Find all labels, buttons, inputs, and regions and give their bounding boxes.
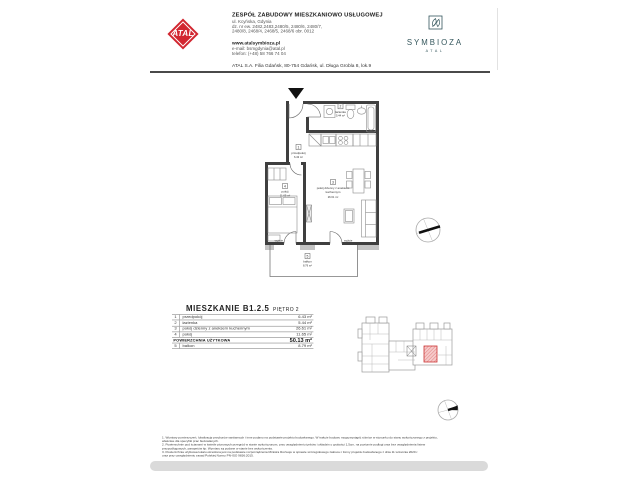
apartment-card-page: ATAL ZESPÓŁ ZABUDOWY MIESZKANIOWO USŁUGO… <box>0 0 640 480</box>
compass-icon-small <box>438 400 458 420</box>
inset-highlighted-unit <box>424 346 437 362</box>
wardrobe-icon <box>268 168 286 180</box>
row-no: 5 <box>172 344 180 348</box>
floor-label: PIĘTRO 2 <box>273 307 299 313</box>
room-2-label: 2 łazienka 5.44 m² <box>335 104 346 118</box>
row-no: 2 <box>172 321 180 326</box>
room-4-label: 4 pokój 11.65 m² <box>280 184 291 198</box>
duct-shaft <box>307 205 312 222</box>
row-name: pokój dzienny z aneksem kuchennym <box>180 327 284 331</box>
svg-text:26.61 m²: 26.61 m² <box>328 195 339 199</box>
row-area: 5.44 m² <box>284 321 313 325</box>
total-row: POWIERZCHNIA UŻYTKOWA 50.13 m² <box>172 337 313 343</box>
plan-doors <box>284 104 342 244</box>
room-3-label: 3 pokój dzienny z aneksem kuchennym 26.6… <box>317 180 350 199</box>
row-area: 8.79 m² <box>284 344 313 348</box>
disclaimer-line: oraz przy uwzględnieniu zasad Polskiej N… <box>162 454 488 458</box>
footer-bar <box>150 461 488 471</box>
table-row: 2 łazienka 5.44 m² <box>172 320 313 326</box>
exit-label-left: wyjście <box>275 239 284 243</box>
symbioza-logo: SYMBIOZA ATAL <box>404 15 466 53</box>
entrance-arrow-icon <box>288 88 304 99</box>
bathroom-fixtures <box>324 105 376 132</box>
living-furniture <box>307 169 377 237</box>
coffee-table-icon <box>344 209 354 223</box>
legal-disclaimer: 1. Wymiary pomieszczeń, lokalizację przy… <box>162 436 488 458</box>
atal-logo-text: ATAL <box>160 29 206 38</box>
row-name: łazienka <box>180 321 284 325</box>
compass-icon <box>410 212 450 252</box>
total-label: POWIERZCHNIA UŻYTKOWA <box>172 338 284 342</box>
office-address: ATAL S.A. Filia Gdańsk, 80-754 Gdańsk, u… <box>232 64 472 69</box>
floor-plan: 1 przedpokój 6.43 m² 2 łazienka 5.44 m² … <box>245 82 395 297</box>
dining-table-icon <box>347 169 371 193</box>
total-area: 50.13 m² <box>284 337 313 343</box>
apartment-id: MIESZKANIE B1.2.5 <box>186 304 269 313</box>
table-row: 3 pokój dzienny z aneksem kuchennym 26.6… <box>172 326 313 332</box>
svg-text:5.44 m²: 5.44 m² <box>336 114 345 118</box>
kitchen-counter <box>309 134 376 146</box>
leaf-icon <box>428 15 443 30</box>
row-no: 4 <box>172 332 180 337</box>
row-name: balkon <box>180 344 284 348</box>
brand-sub: ATAL <box>404 49 466 53</box>
svg-text:łazienka: łazienka <box>335 110 346 114</box>
table-title-row: MIESZKANIE B1.2.5 PIĘTRO 2 <box>172 304 313 314</box>
plan-walls <box>265 101 379 245</box>
header-divider <box>150 71 490 73</box>
balcony-row: 5 balkon 8.79 m² <box>172 343 313 349</box>
washing-machine-icon <box>324 106 335 118</box>
room-5-label: 5 balkon 8.79 m² <box>303 254 312 268</box>
svg-text:4: 4 <box>284 184 286 188</box>
svg-text:11.65 m²: 11.65 m² <box>280 193 291 197</box>
svg-text:3: 3 <box>332 180 334 184</box>
svg-text:kuchennym: kuchennym <box>326 190 341 194</box>
room-1-label: 1 przedpokój 6.43 m² <box>291 145 305 159</box>
svg-text:2: 2 <box>340 105 342 109</box>
building-key-plan <box>352 312 467 427</box>
balcony-wall-stubs <box>265 245 379 250</box>
row-area: 26.61 m² <box>284 327 313 331</box>
row-no: 3 <box>172 326 180 331</box>
toilet-icon <box>346 105 355 119</box>
row-area: 6.43 m² <box>284 315 313 319</box>
row-area: 11.65 m² <box>284 333 313 337</box>
svg-text:1: 1 <box>298 145 300 149</box>
row-name: przedpokój <box>180 315 284 319</box>
exit-label-right: wyjście <box>344 239 353 243</box>
page-edge-line <box>497 8 498 70</box>
svg-text:pokój: pokój <box>282 190 289 194</box>
svg-text:przedpokój: przedpokój <box>291 151 305 155</box>
table-body: 1 przedpokój 6.43 m² 2 łazienka 5.44 m² … <box>172 314 313 349</box>
row-no: 1 <box>172 315 180 320</box>
brand-name: SYMBIOZA <box>404 38 466 47</box>
sink-icon <box>357 106 365 115</box>
svg-text:8.79 m²: 8.79 m² <box>303 263 312 267</box>
bedroom-furniture <box>268 168 297 241</box>
bed-icon <box>268 196 297 233</box>
row-name: pokój <box>180 333 284 337</box>
svg-text:5: 5 <box>307 254 309 258</box>
table-row: 1 przedpokój 6.43 m² <box>172 314 313 320</box>
svg-text:balkon: balkon <box>303 260 312 264</box>
sofa-icon <box>362 200 377 237</box>
bathtub-icon <box>367 105 376 132</box>
svg-text:6.43 m²: 6.43 m² <box>294 155 303 159</box>
area-table: MIESZKANIE B1.2.5 PIĘTRO 2 1 przedpokój … <box>172 304 313 314</box>
